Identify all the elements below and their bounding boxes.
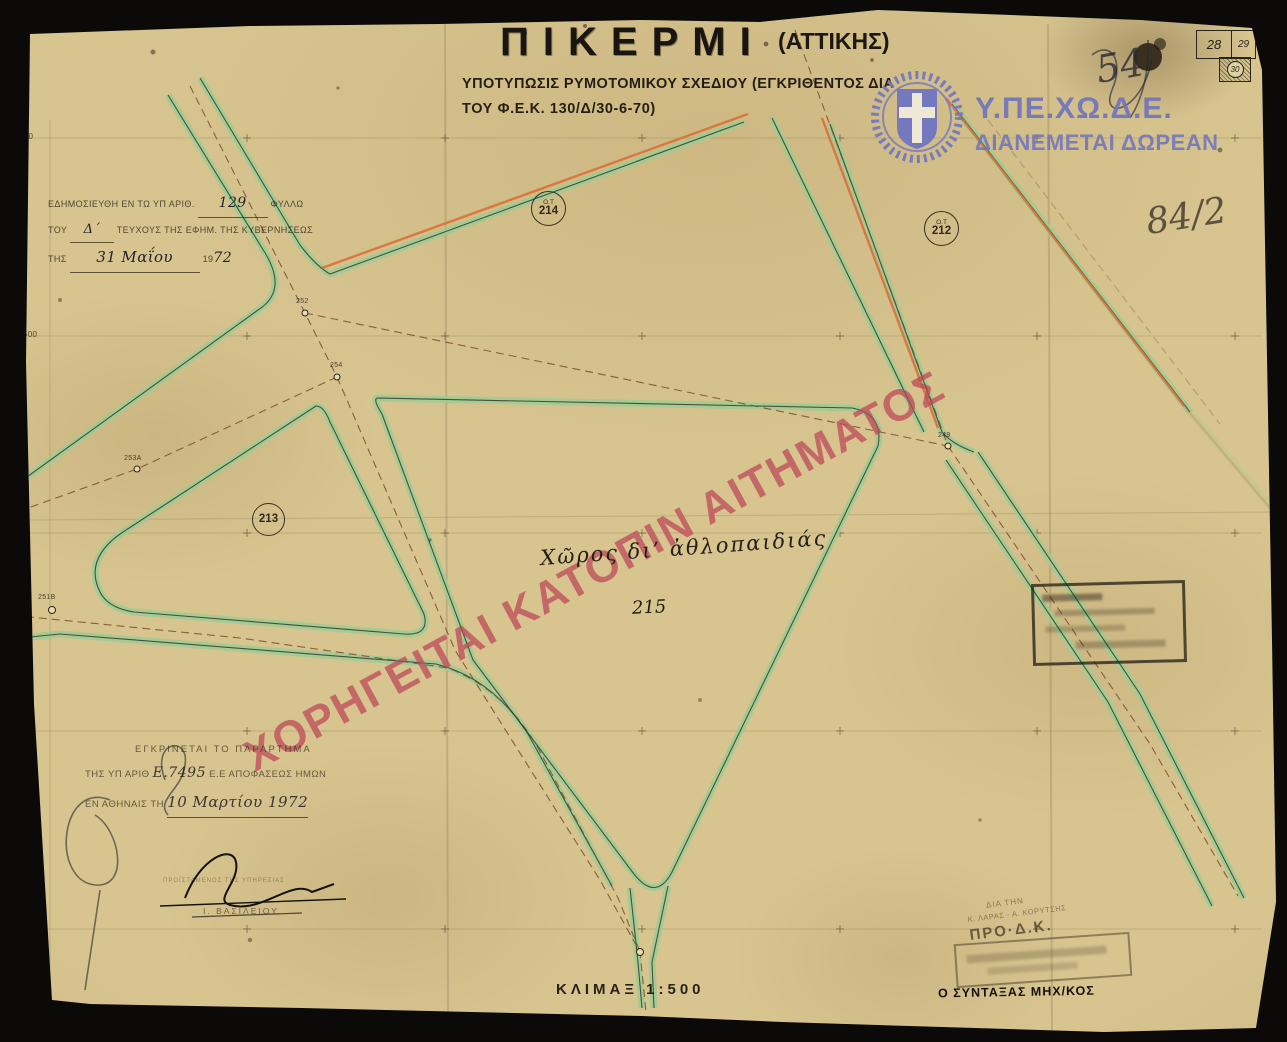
publication-note-line2: ΤΟΥ Δ΄ ΤΕΥΧΟΥΣ ΤΗΣ ΕΦΗΜ. ΤΗΣ ΚΥΒΕΡΝΗΣΕΩΣ: [48, 218, 360, 244]
pub-line1-prefix: ΕΔΗΜΟΣΙΕΥΘΗ ΕΝ ΤΩ ΥΠ ΑΡΙΘ.: [48, 199, 195, 209]
approval-note: ΕΓΚΡΙΝΕΤΑΙ ΤΟ ΠΑΡΑΡΤΗΜΑ ΤΗΣ ΥΠ ΑΡΙΘ Ε.74…: [85, 740, 415, 818]
map-title-region: (ΑΤΤΙΚΗΣ): [778, 28, 890, 55]
block-circle-213: 213: [252, 503, 285, 536]
agency-tagline: ΔΙΑΝΕΜΕΤΑΙ ΔΩΡΕΑΝ: [975, 130, 1219, 156]
grid-label-1: -25.850: [4, 132, 33, 141]
scale-label: ΚΛΙΜΑΞ 1:500: [556, 981, 705, 998]
approval-line3: ΕΝ ΑΘΗΝΑΙΣ ΤΗ 10 Μαρτίου 1972: [85, 787, 415, 818]
pub-line3-prefix: ΤΗΣ: [48, 254, 67, 264]
drafter-label: Ο ΣΥΝΤΑΞΑΣ ΜΗΧ/ΚΟΣ: [938, 984, 1095, 1001]
greek-coat-of-arms-icon: [865, 65, 975, 175]
signer-role-stamp: ΠΡΟΪΣΤΑΜΕΝΟΣ ΤΗΣ ΥΠΗΡΕΣΙΑΣ: [163, 878, 285, 884]
block-213-number: 213: [259, 514, 278, 526]
block-circle-214: Ο.Τ 214: [531, 191, 566, 226]
block-circle-212: Ο.Τ 212: [924, 211, 959, 246]
sheet-index-current: 30: [1227, 61, 1244, 78]
sheet-index-box: 28 29: [1196, 30, 1256, 59]
map-subtitle-line2: ΤΟΥ Φ.Ε.Κ. 130/Δ/30-6-70): [462, 101, 656, 117]
sheet-index-current-box: 30: [1219, 57, 1251, 82]
survey-point-252: 252: [296, 298, 309, 305]
pub-line1-suffix: ΦΥΛΛΩ: [271, 199, 304, 209]
approval-line3-value: 10 Μαρτίου 1972: [167, 787, 308, 818]
grid-label-3: 25.950: [4, 527, 30, 536]
approval-line2-suffix: Ε.Ε ΑΠΟΦΑΣΕΩΣ ΗΜΩΝ: [209, 769, 326, 780]
approval-line1: ΕΓΚΡΙΝΕΤΑΙ ΤΟ ΠΑΡΑΡΤΗΜΑ: [85, 740, 415, 759]
pub-line2-prefix: ΤΟΥ: [48, 225, 67, 235]
pub-line3-yearprefix: 19: [203, 254, 214, 264]
block-214-number: 214: [539, 206, 558, 218]
survey-point-253: 253Α: [124, 455, 142, 462]
grid-label-vertical: -3350: [30, 973, 39, 995]
map-title: ΠΙΚΕΡΜΙ: [500, 20, 765, 65]
pub-line1-value: 129: [198, 190, 268, 218]
publication-note-line1: ΕΔΗΜΟΣΙΕΥΘΗ ΕΝ ΤΩ ΥΠ ΑΡΙΘ. 129 ΦΥΛΛΩ: [48, 190, 360, 218]
illegible-stamp-box: [1031, 580, 1187, 666]
sheet-index-left: 28: [1197, 31, 1232, 58]
publication-note: ΕΔΗΜΟΣΙΕΥΘΗ ΕΝ ΤΩ ΥΠ ΑΡΙΘ. 129 ΦΥΛΛΩ ΤΟΥ…: [48, 190, 360, 273]
corner-note: 54: [1093, 40, 1148, 92]
grid-label-2: -25.500: [8, 330, 37, 339]
approval-line3-prefix: ΕΝ ΑΘΗΝΑΙΣ ΤΗ: [85, 799, 164, 810]
paper-sheet: ΠΙΚΕΡΜΙ (ΑΤΤΙΚΗΣ) ΥΠΟΤΥΠΩΣΙΣ ΡΥΜΟΤΟΜΙΚΟΥ…: [0, 0, 1287, 1042]
survey-point-251: 251Β: [38, 594, 56, 601]
block-212-number: 212: [932, 226, 951, 238]
grid-label-5: -26.050: [6, 921, 35, 930]
approval-line2: ΤΗΣ ΥΠ ΑΡΙΘ Ε.7495 Ε.Ε ΑΠΟΦΑΣΕΩΣ ΗΜΩΝ: [85, 759, 415, 787]
scanned-map-sheet: ΠΙΚΕΡΜΙ (ΑΤΤΙΚΗΣ) ΥΠΟΤΥΠΩΣΙΣ ΡΥΜΟΤΟΜΙΚΟΥ…: [0, 0, 1287, 1042]
grid-label-4: -26.000: [6, 723, 35, 732]
pub-line3-value: 31 Μαΐου: [70, 243, 200, 273]
pub-line2-value: Δ΄: [70, 218, 114, 244]
signer-name: Ι. ΒΑΣΙΛΕΙΟΥ: [203, 906, 279, 916]
block-215-number: 215: [631, 596, 666, 619]
agency-name: Υ.ΠΕ.ΧΩ.Δ.Ε.: [975, 92, 1173, 126]
map-subtitle-line1: ΥΠΟΤΥΠΩΣΙΣ ΡΥΜΟΤΟΜΙΚΟΥ ΣΧΕΔΙΟΥ (ΕΓΚΡΙΘΕΝ…: [462, 76, 894, 92]
survey-point-254: 254: [330, 362, 343, 369]
pub-line3-year: 72: [213, 250, 232, 266]
publication-note-line3: ΤΗΣ 31 Μαΐου 1972: [48, 243, 360, 273]
sheet-index-right: 29: [1232, 31, 1255, 58]
survey-point-249: 249: [938, 432, 951, 439]
approval-line2-prefix: ΤΗΣ ΥΠ ΑΡΙΘ: [85, 769, 150, 780]
pub-line2-suffix: ΤΕΥΧΟΥΣ ΤΗΣ ΕΦΗΜ. ΤΗΣ ΚΥΒΕΡΝΗΣΕΩΣ: [117, 225, 313, 235]
approval-line2-value: Ε.7495: [153, 765, 206, 781]
